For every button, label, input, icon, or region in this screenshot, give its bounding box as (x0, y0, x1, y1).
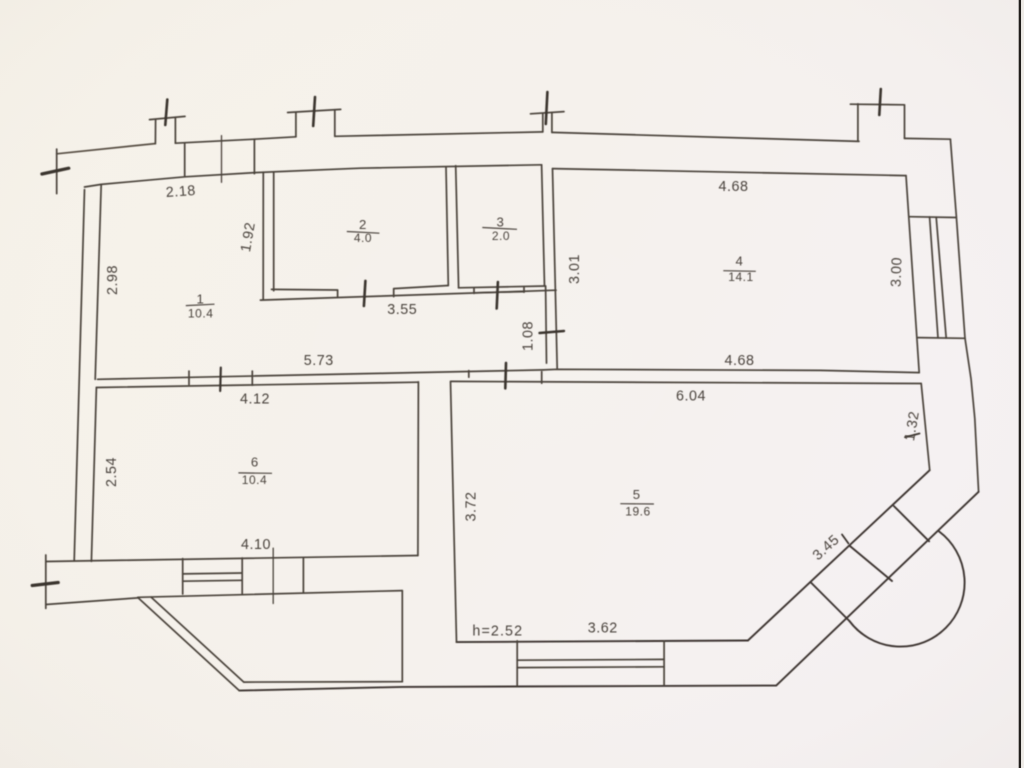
svg-text:14.1: 14.1 (728, 270, 754, 284)
svg-text:6: 6 (251, 454, 259, 469)
svg-text:1: 1 (197, 292, 205, 307)
svg-text:2.54: 2.54 (104, 457, 120, 487)
svg-text:3.72: 3.72 (464, 491, 480, 521)
svg-text:2.0: 2.0 (492, 229, 510, 243)
svg-text:10.4: 10.4 (188, 307, 214, 321)
svg-text:3.62: 3.62 (588, 621, 618, 637)
svg-text:4: 4 (736, 254, 744, 269)
svg-text:2.98: 2.98 (105, 265, 121, 295)
svg-text:5: 5 (633, 487, 641, 502)
svg-text:4.68: 4.68 (724, 353, 754, 369)
svg-text:4.0: 4.0 (354, 231, 372, 245)
svg-text:h=2.52: h=2.52 (472, 624, 523, 640)
svg-text:3: 3 (497, 215, 505, 230)
svg-text:4.68: 4.68 (718, 179, 748, 195)
svg-text:3.01: 3.01 (567, 254, 583, 284)
svg-text:4.10: 4.10 (241, 537, 271, 553)
svg-text:1.08: 1.08 (520, 321, 536, 351)
svg-text:5.73: 5.73 (304, 353, 334, 369)
svg-text:2: 2 (359, 217, 367, 232)
svg-text:10.4: 10.4 (242, 473, 268, 487)
svg-text:4.12: 4.12 (240, 392, 270, 408)
svg-text:6.04: 6.04 (676, 389, 706, 405)
svg-text:3.00: 3.00 (888, 257, 905, 288)
svg-text:19.6: 19.6 (625, 504, 651, 518)
svg-text:2.18: 2.18 (165, 183, 196, 201)
svg-text:3.55: 3.55 (387, 302, 417, 318)
